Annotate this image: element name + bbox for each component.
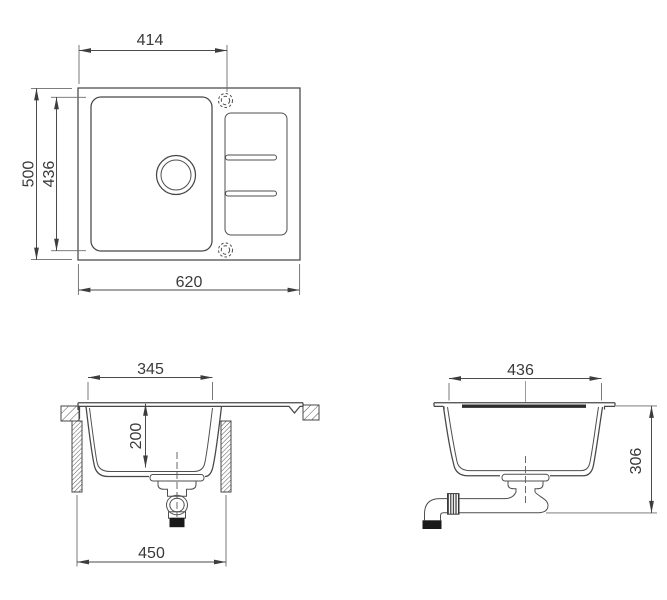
dimension-200: 200 xyxy=(128,404,146,468)
top-view: 414 500 436 620 xyxy=(21,32,301,295)
side-section-view: 436 306 xyxy=(423,362,658,529)
tap-hole-outer-dashed-circle xyxy=(219,94,233,108)
pipe-elbow xyxy=(425,499,448,521)
technical-drawing: 414 500 436 620 xyxy=(0,0,667,600)
bowl-outline xyxy=(91,97,212,251)
tap-hole-outer-dashed-circle xyxy=(219,243,233,257)
waste-pipe-top xyxy=(459,492,516,499)
pipe-coupling-nut xyxy=(448,494,460,515)
tap-hole-inner-dashed-circle xyxy=(221,246,229,254)
tap-hole-knockout-top xyxy=(219,94,233,108)
dimension-450: 450 xyxy=(77,495,226,567)
drain-assembly-front xyxy=(150,452,204,527)
dimension-345: 345 xyxy=(88,361,213,400)
sink-rim-profile xyxy=(78,403,303,419)
extension-lines xyxy=(79,45,227,92)
drawing-svg: 414 500 436 620 xyxy=(0,0,667,600)
dimension-label: 500 xyxy=(21,161,38,188)
dimension-label: 200 xyxy=(128,423,145,450)
drain-outlet-cap xyxy=(170,518,185,527)
dimension-label: 414 xyxy=(137,32,164,49)
cabinet-panel-left xyxy=(72,421,82,492)
waste-pipe-bottom xyxy=(459,492,548,513)
bowl-outer-wall xyxy=(86,407,222,477)
countertop-section-right xyxy=(303,405,319,420)
bowl-outer-wall xyxy=(444,407,603,476)
dimension-label: 450 xyxy=(138,545,165,562)
pipe-outlet-cap xyxy=(423,520,442,529)
dimension-620: 620 xyxy=(78,264,299,295)
drain-inner-circle xyxy=(161,160,191,190)
dimension-label: 620 xyxy=(176,274,203,291)
front-section-view: 345 200 450 xyxy=(61,361,319,567)
drainboard-outline xyxy=(225,113,287,235)
drainboard-groove-2 xyxy=(226,191,277,196)
bowl-inner-wall xyxy=(90,408,213,472)
bowl-inner-wall xyxy=(448,407,599,471)
countertop-section-left xyxy=(61,406,79,421)
sink-outer-edge xyxy=(78,88,300,260)
dimension-label: 436 xyxy=(507,362,534,379)
dimension-label: 345 xyxy=(137,361,164,378)
dimension-414: 414 xyxy=(79,32,227,92)
dimension-436-top-view: 436 xyxy=(41,97,86,250)
cabinet-panel-right xyxy=(221,421,231,492)
dimension-label: 436 xyxy=(41,161,58,188)
drainboard-groove-1 xyxy=(226,155,277,160)
dimension-306: 306 xyxy=(546,406,657,513)
extension-lines xyxy=(88,382,213,400)
drain-outer-circle xyxy=(157,156,196,195)
dimension-label: 306 xyxy=(628,448,645,475)
tap-hole-knockout-bottom xyxy=(219,243,233,257)
tap-hole-inner-dashed-circle xyxy=(221,96,229,104)
